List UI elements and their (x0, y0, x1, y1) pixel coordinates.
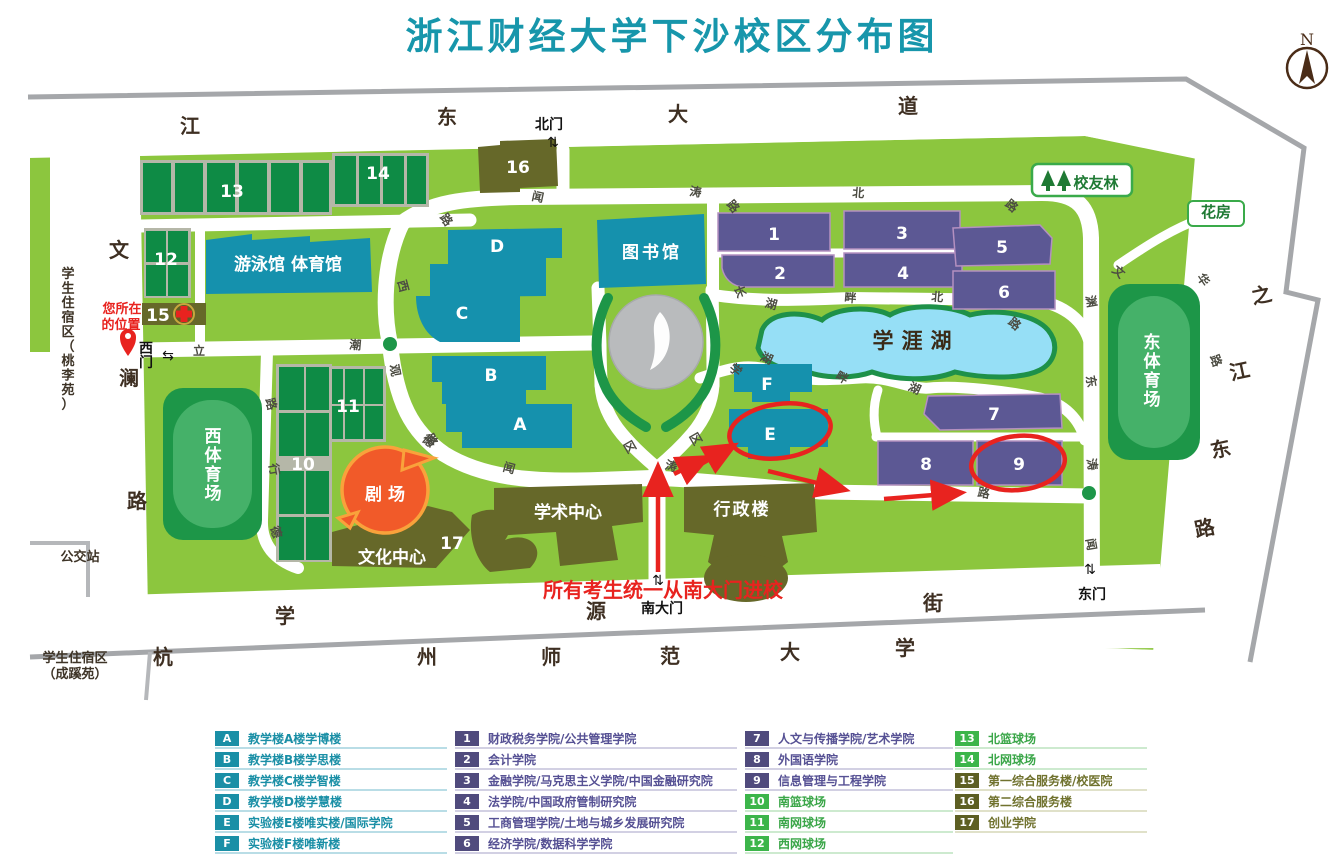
unit-label-8: 8 (920, 455, 932, 475)
west-stadium-label: 西体育场 (205, 427, 223, 504)
road-char-label: 渊 (1083, 294, 1100, 308)
unit-label-f: F (761, 375, 773, 395)
unit-label-4: 4 (897, 264, 909, 284)
unit-label-b: B (485, 366, 498, 386)
unit-label-2: 2 (774, 264, 786, 284)
unit-label-13: 13 (220, 182, 244, 202)
street-char-jiangdong: 东 (437, 105, 457, 129)
north-compass (1287, 48, 1327, 88)
medical-cross-icon (174, 304, 194, 324)
road-char-label: 涛 (689, 183, 703, 200)
admin-building-label: 行政楼 (713, 499, 771, 520)
street-char-xueyuan: 源 (586, 599, 606, 623)
east-gate-label: 东门 (1078, 586, 1106, 603)
street-char-hangshida: 师 (541, 645, 561, 669)
unit-label-3: 3 (896, 224, 908, 244)
unit-label-14: 14 (366, 164, 390, 184)
unit-label-16: 16 (506, 158, 530, 178)
street-char-wenlan: 文 (109, 238, 130, 262)
unit-label-17: 17 (440, 534, 464, 554)
roundabout (383, 337, 397, 351)
street-char-wenlan: 澜 (119, 366, 139, 390)
road-border-line (146, 652, 150, 700)
road-char-label: 畔 (844, 290, 857, 306)
gate-arrow-icon: ⇅ (547, 135, 559, 151)
road-char-label: 闻 (1083, 537, 1099, 551)
unit-label-5: 5 (996, 238, 1008, 258)
unit-label-12: 12 (154, 250, 178, 270)
dorm-west-label: 学生住宿区（桃李苑） (60, 266, 75, 413)
road-char-label: 东 (1083, 374, 1100, 388)
street-char-hangshida: 杭 (153, 645, 173, 669)
street-char-xueyuan: 街 (922, 591, 943, 615)
road-char-label: 行 (266, 461, 283, 476)
gate-arrow-icon: ⇅ (1084, 562, 1096, 578)
street-char-hangshida: 学 (895, 636, 915, 660)
west-gate-label: 门 (139, 354, 153, 371)
natatorium-gym-label: 游泳馆 体育馆 (234, 254, 342, 275)
east-stadium-label: 东体育场 (1144, 332, 1162, 410)
road-char-label: 北 (931, 289, 944, 305)
street-char-hangshida: 大 (780, 640, 800, 664)
cultural-center-label: 文化中心 (358, 547, 426, 568)
library-label: 图书馆 (622, 242, 682, 263)
alumni-forest-label: 校友林 (1073, 174, 1119, 192)
west-green-strip (30, 146, 50, 352)
unit-label-11: 11 (336, 397, 360, 417)
theater-label: 剧 场 (365, 485, 405, 505)
greenhouse-label: 花房 (1201, 203, 1231, 221)
academic-center-label: 学术中心 (534, 502, 602, 523)
dorm-south-label: （成蹊苑） (42, 666, 107, 682)
road-char-label: 立 (193, 343, 205, 358)
roundabout (1082, 486, 1096, 500)
road-char-label: 北 (852, 185, 865, 201)
unit-label-e: E (764, 425, 776, 445)
street-char-xueyuan: 学 (275, 604, 295, 628)
road-char-label: 涛 (1084, 457, 1101, 471)
street-char-hangshida: 州 (417, 645, 437, 669)
building-a (446, 404, 572, 448)
unit-label-7: 7 (988, 405, 1000, 425)
unit-label-9: 9 (1013, 455, 1025, 475)
unit-label-a: A (513, 415, 527, 435)
unit-label-15: 15 (146, 306, 170, 326)
lake-label: 学涯湖 (873, 329, 960, 353)
street-char-wenlan: 路 (127, 489, 148, 513)
south-gate-label: 南大门 (641, 600, 683, 617)
you-are-here-label: 的位置 (101, 317, 140, 333)
street-char-jiangdong: 江 (180, 114, 200, 138)
unit-label-10: 10 (291, 455, 315, 475)
unit-label-1: 1 (768, 225, 780, 245)
bus-stop-label: 公交站 (60, 549, 99, 565)
campus-map: 江东大道文澜路学源街之江东路杭州师范大学闻涛北路路路西潮立观路路行德德闻涛长湖畔… (0, 0, 1344, 866)
road-char-label: 潮 (349, 337, 362, 353)
unit-label-d: D (490, 237, 504, 257)
entrance-note: 所有考生统一从南大门进校 (543, 578, 784, 602)
gate-arrow-icon: ⇆ (162, 348, 174, 364)
street-char-hangshida: 范 (660, 644, 680, 668)
road-char-label: 观 (387, 363, 403, 377)
street-char-jiangdong: 道 (898, 94, 918, 118)
street-char-jiangdong: 大 (668, 102, 688, 126)
you-are-here-label: 您所在 (102, 301, 141, 317)
dorm-south-label: 学生住宿区 (42, 650, 107, 666)
compass-n-label: N (1300, 30, 1314, 49)
north-gate-label: 北门 (535, 116, 563, 133)
unit-label-6: 6 (998, 283, 1010, 303)
unit-label-c: C (456, 304, 468, 324)
campus-map-page: 浙江财经大学下沙校区分布图 (0, 0, 1344, 866)
